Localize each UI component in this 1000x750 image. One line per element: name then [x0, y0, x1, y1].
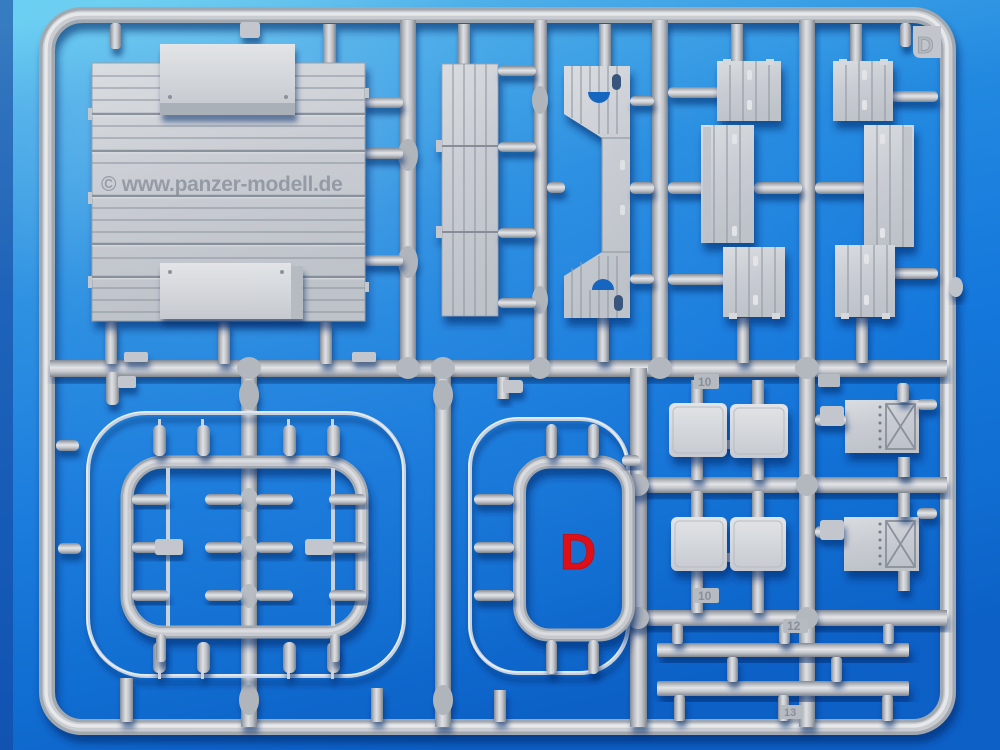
- svg-text:D: D: [560, 524, 596, 580]
- svg-text:D: D: [917, 32, 934, 58]
- svg-text:© www.panzer-modell.de: © www.panzer-modell.de: [101, 173, 342, 196]
- svg-text:10: 10: [698, 589, 712, 603]
- svg-text:13: 13: [784, 707, 796, 719]
- svg-text:12: 12: [787, 619, 801, 633]
- svg-text:10: 10: [698, 375, 712, 389]
